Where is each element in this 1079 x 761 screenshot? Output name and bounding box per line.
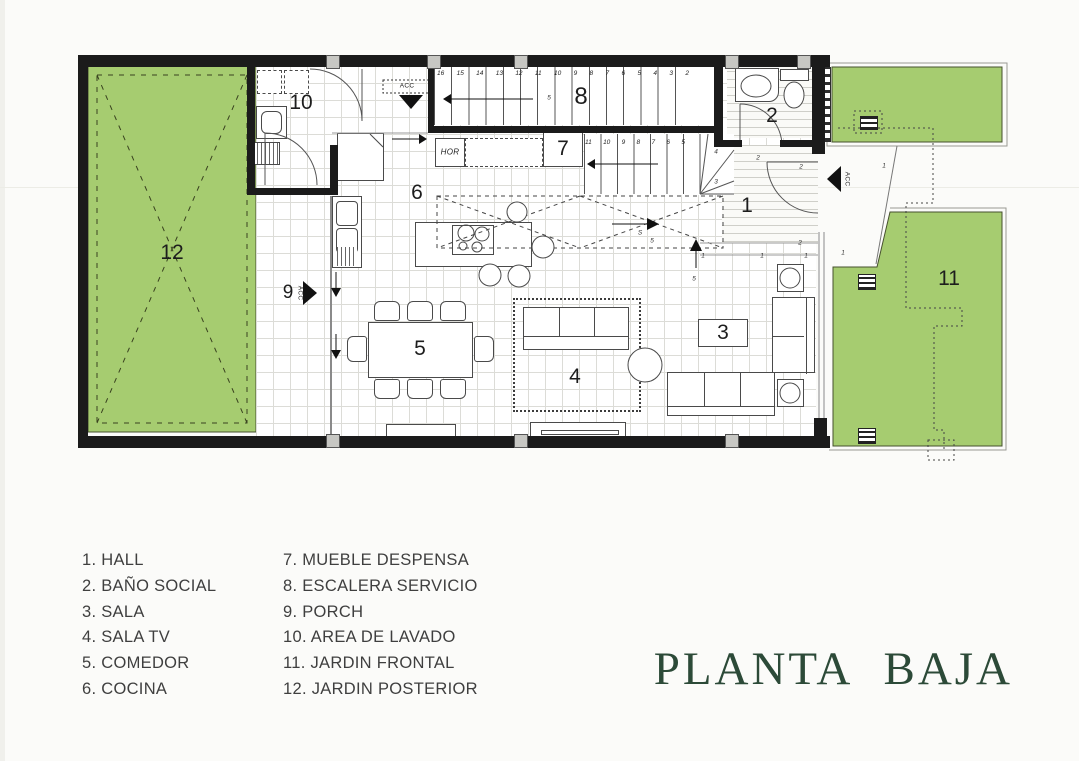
dimension-mark: 5 xyxy=(547,95,551,102)
room-label-lavado: 10 xyxy=(289,91,312,115)
wall-bath-west xyxy=(714,55,723,147)
oven-annotation: HOR xyxy=(441,148,460,157)
toilet-bowl xyxy=(784,82,804,108)
porch-access-arrow xyxy=(303,281,317,305)
burner xyxy=(472,242,482,252)
column xyxy=(797,55,811,69)
slide-arrowhead xyxy=(331,288,341,297)
wall-bath-south xyxy=(714,140,742,147)
dimension-mark: 5 xyxy=(692,276,696,283)
wall-left xyxy=(78,55,88,448)
step-number: 16 xyxy=(437,70,444,77)
room-label-jardin-posterior: 12 xyxy=(160,241,183,265)
column xyxy=(326,434,340,448)
winder-step-number: 4 xyxy=(714,149,718,156)
dimension-mark: 1 xyxy=(760,253,764,260)
fridge-fold xyxy=(370,134,383,147)
dimension-mark: 1 xyxy=(804,253,808,260)
front-door-arc xyxy=(767,162,818,213)
service-access-arrow xyxy=(399,95,423,109)
step-number: 6 xyxy=(666,139,670,146)
room-label-porch: 9 xyxy=(283,282,294,304)
wall-under-stair xyxy=(428,126,723,133)
acc-annotation: ACC xyxy=(844,172,851,187)
service-stair-numbers: 1615141312111098765432 xyxy=(437,70,689,77)
slide-arrowhead xyxy=(331,350,341,359)
step-number: 13 xyxy=(496,70,503,77)
room-label-cocina: 6 xyxy=(411,181,423,205)
step-number: 9 xyxy=(574,70,578,77)
step-number: 10 xyxy=(603,139,610,146)
void-arrowhead xyxy=(647,218,659,230)
kitchen-entry-arrowhead xyxy=(419,134,427,144)
table-lamp xyxy=(780,383,800,403)
step-number: 4 xyxy=(653,70,657,77)
step-number: 2 xyxy=(685,70,689,77)
step-number: 7 xyxy=(606,70,610,77)
dimension-mark: 1 xyxy=(841,250,845,257)
main-stair-arrowhead xyxy=(587,159,595,169)
wall-stair-end xyxy=(428,66,434,126)
bar-stool xyxy=(508,265,530,287)
wall-kitchen-west xyxy=(330,145,338,195)
dimension-mark: 1 xyxy=(882,163,886,170)
acc-annotation: ACC xyxy=(400,83,415,90)
bar-stool xyxy=(507,202,527,222)
step-number: 5 xyxy=(637,70,641,77)
room-label-escalera: 8 xyxy=(574,83,587,111)
room-label-despensa: 7 xyxy=(557,137,569,161)
column xyxy=(725,434,739,448)
main-stair-numbers: 111098765 xyxy=(585,139,685,146)
service-stair-arrowhead xyxy=(443,94,451,104)
room-label-sala: 3 xyxy=(717,321,729,345)
bath-sink xyxy=(741,75,771,97)
up-arrowhead xyxy=(690,239,702,251)
room-label-hall: 1 xyxy=(741,194,753,218)
column xyxy=(514,55,528,69)
armchair xyxy=(628,348,662,382)
dimension-mark: 2 xyxy=(756,155,760,162)
laundry-porch-door-arc xyxy=(265,133,317,185)
wall-garden-divider xyxy=(247,55,255,195)
dimension-mark: 5 xyxy=(650,238,654,245)
step-number: 10 xyxy=(554,70,561,77)
dimension-mark: 2 xyxy=(799,164,803,171)
wall-bottom xyxy=(78,436,830,448)
column xyxy=(326,55,340,69)
step-number: 5 xyxy=(681,139,685,146)
winder-step-number: 3 xyxy=(714,179,718,186)
table-lamp xyxy=(780,268,800,288)
room-label-jardin-frontal: 11 xyxy=(938,267,960,291)
front-access-arrow xyxy=(827,166,841,192)
column xyxy=(514,434,528,448)
floor-plan-page: 1 2 3 4 5 6 7 8 9 10 11 12 ACC HOR ACC A… xyxy=(0,0,1079,761)
room-label-bano: 2 xyxy=(766,104,778,128)
laundry-door-arc xyxy=(310,69,362,121)
burner xyxy=(459,242,467,250)
burner xyxy=(458,225,474,241)
page-title: PLANTA BAJA xyxy=(654,642,1013,696)
step-number: 14 xyxy=(476,70,483,77)
step-number: 6 xyxy=(621,70,625,77)
step-number: 8 xyxy=(637,139,641,146)
step-number: 7 xyxy=(651,139,655,146)
column xyxy=(427,55,441,69)
step-number: 8 xyxy=(590,70,594,77)
column xyxy=(725,55,739,69)
wall-bath-south xyxy=(780,140,818,147)
bar-stool xyxy=(479,264,501,286)
step-number: 11 xyxy=(535,70,542,77)
step-number: 15 xyxy=(457,70,464,77)
step-number: 3 xyxy=(669,70,673,77)
bar-stool xyxy=(532,236,554,258)
room-label-sala-tv: 4 xyxy=(569,365,581,389)
dimension-mark: 1 xyxy=(701,253,705,260)
burner xyxy=(475,227,489,241)
dimension-mark: S xyxy=(638,230,642,237)
step-number: 11 xyxy=(585,139,592,146)
step-number: 9 xyxy=(622,139,626,146)
acc-annotation: ACC xyxy=(297,286,304,301)
wall-right-bottom xyxy=(814,418,827,448)
wall-laundry-south xyxy=(247,188,332,195)
step-number: 12 xyxy=(515,70,522,77)
dimension-mark: 2 xyxy=(798,240,802,247)
room-label-comedor: 5 xyxy=(414,337,426,361)
